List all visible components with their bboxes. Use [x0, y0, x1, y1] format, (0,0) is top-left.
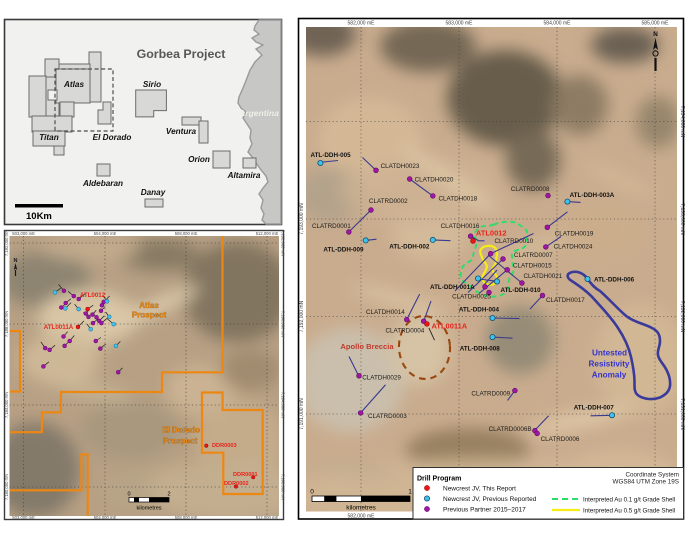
svg-text:CLATDH0014: CLATDH0014	[366, 309, 405, 316]
svg-text:Gorbea Project: Gorbea Project	[137, 47, 226, 61]
svg-text:0: 0	[127, 492, 130, 498]
svg-text:El Dorado: El Dorado	[93, 133, 132, 142]
svg-text:Ventura: Ventura	[166, 127, 197, 136]
svg-text:CLATRD0006B: CLATRD0006B	[489, 426, 532, 433]
svg-text:N: N	[653, 31, 658, 38]
svg-text:Drill Program: Drill Program	[417, 476, 461, 483]
svg-text:ATL-DDH-006: ATL-DDH-006	[594, 277, 635, 284]
svg-text:Previous Partner 2015–2017: Previous Partner 2015–2017	[443, 507, 526, 514]
svg-text:DDR0001: DDR0001	[233, 472, 258, 478]
svg-text:Newcrest JV, This Report: Newcrest JV, This Report	[443, 486, 516, 493]
svg-text:Untested: Untested	[592, 349, 627, 358]
svg-text:CLATDH0016: CLATDH0016	[441, 223, 480, 230]
svg-text:El Dorado: El Dorado	[162, 426, 200, 435]
svg-text:Prospect: Prospect	[163, 437, 198, 446]
svg-text:7,180,000 mN: 7,180,000 mN	[281, 474, 286, 500]
svg-text:CLATRD0006: CLATRD0006	[541, 436, 580, 443]
svg-text:ATL-DDH-003A: ATL-DDH-003A	[570, 192, 615, 199]
svg-text:7,188,000 mN: 7,188,000 mN	[4, 311, 9, 337]
svg-text:504,000 mE: 504,000 mE	[94, 231, 117, 236]
svg-text:7,191,000 mN: 7,191,000 mN	[679, 398, 685, 430]
svg-text:ATL0011A: ATL0011A	[44, 324, 74, 331]
svg-text:CLATDH0024: CLATDH0024	[554, 244, 593, 251]
svg-text:CLATRD0010: CLATRD0010	[495, 238, 534, 245]
svg-text:7,193,000 mN: 7,193,000 mN	[679, 203, 685, 235]
svg-text:CLATDH0019: CLATDH0019	[555, 230, 594, 237]
svg-text:ATL-DDH-005: ATL-DDH-005	[311, 152, 352, 159]
svg-text:Danay: Danay	[141, 188, 166, 197]
svg-text:584,000 mE: 584,000 mE	[544, 21, 572, 27]
svg-text:Apollo Breccia: Apollo Breccia	[340, 342, 394, 351]
svg-text:7,192,000 mN: 7,192,000 mN	[679, 301, 685, 333]
svg-text:CLATRD0001: CLATRD0001	[312, 223, 351, 230]
svg-text:CLATDH0029: CLATDH0029	[362, 375, 401, 382]
svg-text:Interpreted Au 0.1 g/t Grade S: Interpreted Au 0.1 g/t Grade Shell	[583, 497, 675, 504]
svg-text:Interpreted Au 0.5 g/t Grade S: Interpreted Au 0.5 g/t Grade Shell	[583, 508, 675, 515]
svg-text:CLATRD0008: CLATRD0008	[511, 186, 550, 193]
svg-text:7,184,000 mN: 7,184,000 mN	[281, 392, 286, 418]
svg-text:7,192,000 mN: 7,192,000 mN	[299, 300, 305, 332]
svg-text:CLATDH0025: CLATDH0025	[452, 294, 491, 301]
svg-text:Coordinate System: Coordinate System	[625, 472, 679, 479]
svg-text:ATL-DDH-001A: ATL-DDH-001A	[430, 284, 475, 291]
svg-text:10Km: 10Km	[26, 211, 52, 222]
svg-text:CLATRD0004: CLATRD0004	[386, 327, 425, 334]
svg-text:7,180,000 mN: 7,180,000 mN	[4, 474, 9, 500]
svg-text:Altamira: Altamira	[227, 171, 261, 180]
svg-text:504,000 mE: 504,000 mE	[94, 515, 117, 520]
svg-text:ATL-DDH-008: ATL-DDH-008	[460, 345, 501, 352]
svg-text:ATL-DDH-009: ATL-DDH-009	[323, 246, 364, 253]
svg-text:582,000 mE: 582,000 mE	[348, 21, 376, 27]
svg-text:CLATDH0021: CLATDH0021	[524, 273, 563, 280]
svg-text:512,000 mE: 512,000 mE	[256, 515, 279, 520]
svg-text:583,000 mE: 583,000 mE	[446, 21, 474, 27]
svg-text:CLATDH0018: CLATDH0018	[439, 196, 478, 203]
svg-text:CLATDH0017: CLATDH0017	[546, 297, 585, 304]
svg-text:503,000 mE: 503,000 mE	[12, 231, 35, 236]
svg-text:Newcrest JV, Previous Reported: Newcrest JV, Previous Reported	[443, 496, 537, 503]
svg-text:ATL-DDH-002: ATL-DDH-002	[389, 243, 430, 250]
svg-text:7,192,000 mN: 7,192,000 mN	[281, 230, 286, 256]
svg-text:ATL-DDH-007: ATL-DDH-007	[574, 405, 615, 412]
svg-text:512,000 mE: 512,000 mE	[256, 231, 279, 236]
svg-text:7,193,000 mN: 7,193,000 mN	[299, 203, 305, 235]
svg-text:Aldebaran: Aldebaran	[82, 179, 123, 188]
svg-text:Titan: Titan	[39, 133, 58, 142]
svg-text:kilometres: kilometres	[346, 505, 376, 512]
svg-text:ATL-DDH-004: ATL-DDH-004	[459, 307, 500, 314]
svg-text:0: 0	[310, 489, 314, 496]
svg-text:ATL0012: ATL0012	[80, 292, 106, 299]
svg-text:585,000 mE: 585,000 mE	[642, 21, 670, 27]
svg-text:ATL-DDH-010: ATL-DDH-010	[501, 287, 542, 294]
svg-text:1: 1	[408, 489, 412, 496]
svg-text:508,000 mE: 508,000 mE	[175, 515, 198, 520]
svg-text:Resistivity: Resistivity	[589, 360, 630, 369]
svg-text:582,000 mE: 582,000 mE	[348, 514, 376, 520]
svg-text:Anomaly: Anomaly	[592, 371, 627, 380]
svg-text:CLATRD0002: CLATRD0002	[369, 198, 408, 205]
svg-text:CLATDH0023: CLATDH0023	[381, 163, 420, 170]
svg-text:Orion: Orion	[188, 155, 210, 164]
svg-text:7,191,000 mN: 7,191,000 mN	[299, 398, 305, 430]
svg-text:CLATRD0009: CLATRD0009	[471, 391, 510, 398]
svg-text:Sirio: Sirio	[143, 80, 161, 89]
svg-text:CLATRD0003: CLATRD0003	[368, 413, 407, 420]
svg-text:7,188,000 mN: 7,188,000 mN	[281, 311, 286, 337]
svg-text:2: 2	[167, 492, 170, 498]
svg-text:508,000 mE: 508,000 mE	[175, 231, 198, 236]
svg-text:7,184,000 mN: 7,184,000 mN	[4, 392, 9, 418]
svg-text:503,000 mE: 503,000 mE	[12, 515, 35, 520]
svg-text:7,194,000 mN: 7,194,000 mN	[679, 106, 685, 138]
svg-text:kilometres: kilometres	[136, 506, 161, 512]
svg-text:DDR0003: DDR0003	[212, 443, 237, 449]
svg-text:Atlas: Atlas	[139, 301, 159, 310]
svg-text:Prospect: Prospect	[132, 311, 167, 320]
svg-text:CLATDH0020: CLATDH0020	[415, 177, 454, 184]
svg-text:Argentina: Argentina	[238, 108, 279, 118]
svg-text:ATL0012: ATL0012	[476, 228, 507, 237]
svg-text:ATL0011A: ATL0011A	[432, 322, 468, 331]
svg-text:7,192,000 mN: 7,192,000 mN	[4, 230, 9, 256]
svg-text:WGS84 UTM Zone 19S: WGS84 UTM Zone 19S	[613, 479, 680, 486]
svg-text:CLATRD0007: CLATRD0007	[514, 252, 553, 259]
svg-text:CLATDH0015: CLATDH0015	[513, 262, 552, 269]
svg-text:DDR0002: DDR0002	[224, 481, 249, 487]
svg-text:Atlas: Atlas	[63, 80, 84, 89]
